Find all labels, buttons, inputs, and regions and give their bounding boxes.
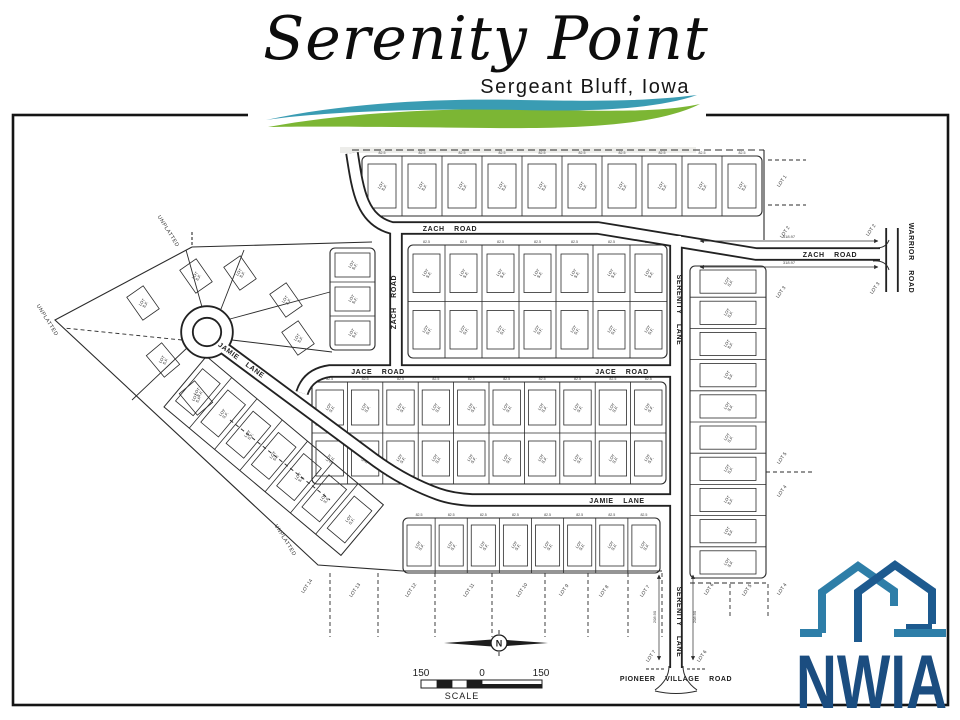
page-subtitle: Sergeant Bluff, Iowa — [380, 76, 690, 99]
flyer-page: LOTS.F.82.5LOTS.F.82.5LOTS.F.82.5LOTS.F.… — [0, 0, 960, 720]
nwia-logo: NWIA — [793, 554, 947, 720]
page-title: Serenity Point — [180, 4, 792, 74]
nwia-wordmark: NWIA — [796, 640, 947, 720]
decor-overlay: NWIA — [0, 0, 960, 720]
